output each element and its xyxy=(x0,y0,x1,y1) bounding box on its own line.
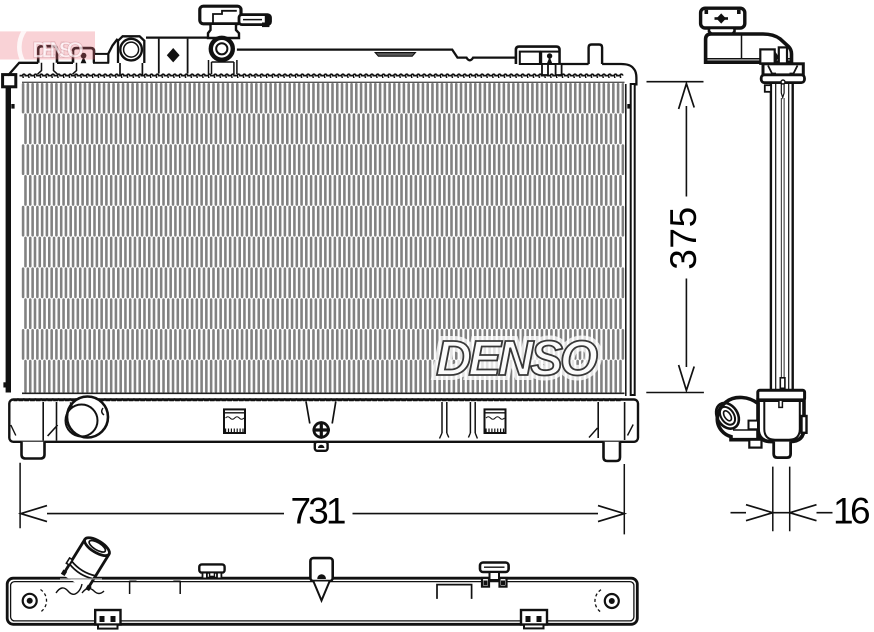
svg-text:DENSO: DENSO xyxy=(436,332,598,386)
svg-text:731: 731 xyxy=(291,490,347,531)
svg-text:375: 375 xyxy=(663,207,704,270)
svg-text:DENSO: DENSO xyxy=(32,38,84,63)
svg-text:16: 16 xyxy=(833,490,871,531)
